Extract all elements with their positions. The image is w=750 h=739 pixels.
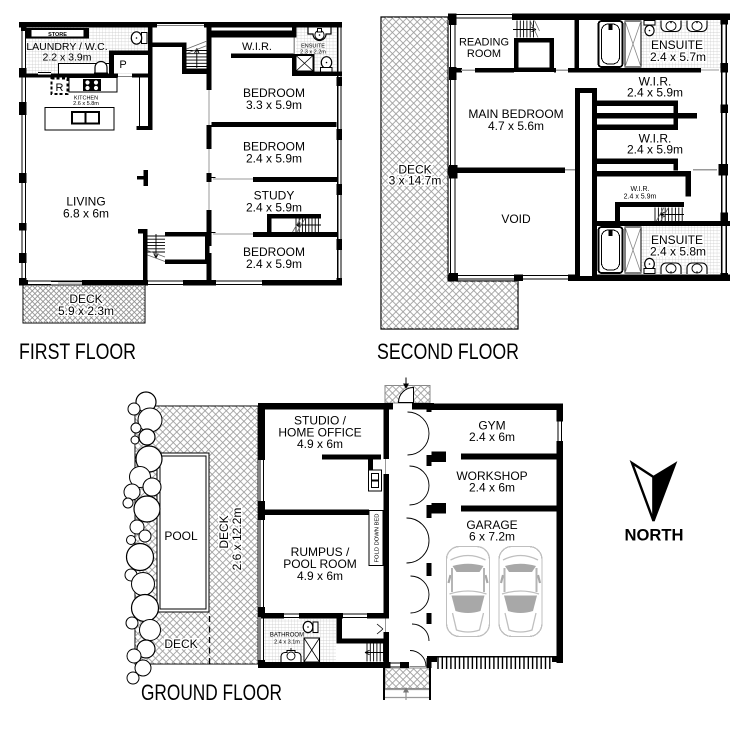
svg-text:2.4 x 5.7m: 2.4 x 5.7m	[650, 50, 706, 64]
svg-text:W.I.R.: W.I.R.	[630, 186, 649, 193]
svg-text:DECK: DECK	[217, 515, 231, 548]
svg-text:2.4 x 5.9m: 2.4 x 5.9m	[246, 257, 302, 271]
svg-text:W.I.R.: W.I.R.	[242, 41, 272, 53]
svg-text:4.7 x 5.6m: 4.7 x 5.6m	[488, 119, 544, 133]
svg-text:2.4 x 5.8m: 2.4 x 5.8m	[650, 245, 706, 259]
svg-text:READING: READING	[459, 37, 509, 49]
svg-text:2.4 x 6m: 2.4 x 6m	[469, 481, 515, 495]
svg-text:6 x 7.2m: 6 x 7.2m	[469, 530, 515, 544]
svg-text:3.3 x 5.9m: 3.3 x 5.9m	[246, 98, 302, 112]
svg-text:BATHROOM: BATHROOM	[270, 633, 304, 639]
svg-text:2.4 x 5.9m: 2.4 x 5.9m	[246, 201, 302, 215]
svg-text:STORE: STORE	[48, 32, 67, 38]
svg-text:FIRST FLOOR: FIRST FLOOR	[19, 339, 136, 364]
svg-text:2.4 x 5.9m: 2.4 x 5.9m	[627, 86, 683, 100]
svg-text:5.9 x 2.3m: 5.9 x 2.3m	[58, 304, 114, 318]
svg-text:4.9 x 6m: 4.9 x 6m	[297, 437, 343, 451]
svg-text:2.6 x 5.8m: 2.6 x 5.8m	[73, 101, 99, 107]
svg-text:GROUND FLOOR: GROUND FLOOR	[141, 680, 282, 705]
svg-text:SECOND FLOOR: SECOND FLOOR	[377, 339, 519, 364]
svg-text:6.8 x 6m: 6.8 x 6m	[63, 207, 109, 221]
svg-text:R: R	[56, 82, 64, 94]
svg-text:P: P	[119, 59, 126, 71]
svg-text:2.4 x 5.9m: 2.4 x 5.9m	[627, 143, 683, 157]
svg-text:POOL: POOL	[164, 529, 198, 543]
svg-text:2.4 x 5.9m: 2.4 x 5.9m	[246, 152, 302, 166]
svg-text:4.9 x 6m: 4.9 x 6m	[297, 569, 343, 583]
svg-text:2.4 x 5.9m: 2.4 x 5.9m	[624, 194, 657, 201]
svg-text:3 x 14.7m: 3 x 14.7m	[389, 174, 442, 188]
svg-text:ROOM: ROOM	[467, 48, 501, 60]
svg-text:NORTH: NORTH	[625, 526, 684, 545]
svg-text:2.6 x 12.2m: 2.6 x 12.2m	[230, 508, 244, 571]
svg-text:DECK: DECK	[164, 637, 197, 651]
svg-text:VOID: VOID	[501, 212, 531, 226]
svg-text:2.4 x 6m: 2.4 x 6m	[469, 430, 515, 444]
svg-text:FOLD DOWN BED: FOLD DOWN BED	[375, 514, 381, 563]
svg-text:2.4 x 3.1m: 2.4 x 3.1m	[274, 640, 300, 646]
svg-text:2.2 x 3.9m: 2.2 x 3.9m	[42, 52, 91, 64]
